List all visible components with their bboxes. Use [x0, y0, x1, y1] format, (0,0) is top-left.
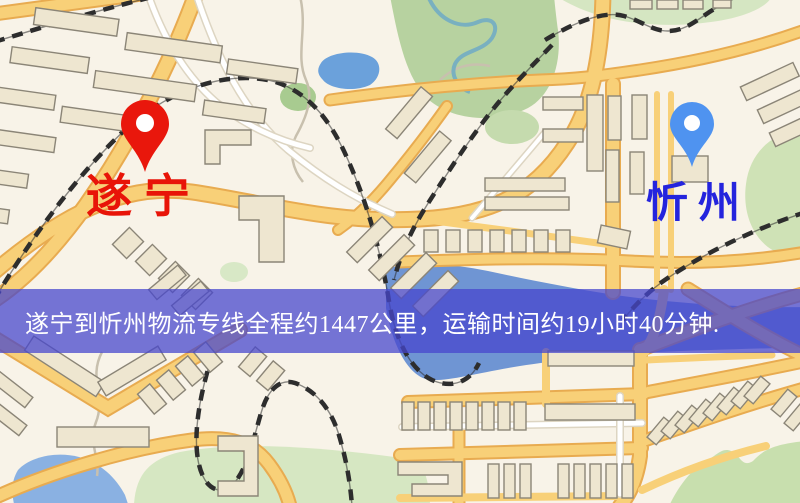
- route-banner-text: 遂宁到忻州物流专线全程约1447公里，运输时间约19小时40分钟.: [25, 304, 720, 339]
- origin-label: 遂宁: [86, 174, 202, 220]
- blue-pin-icon: [665, 97, 719, 169]
- destination-label: 忻州: [646, 183, 750, 225]
- lake: [318, 52, 379, 89]
- map-screenshot: 遂宁 忻州 遂宁到忻州物流专线全程约1447公里，运输时间约19小时40分钟.: [0, 0, 800, 503]
- map-canvas[interactable]: [0, 0, 800, 503]
- red-pin-icon: [115, 94, 175, 174]
- origin-pin[interactable]: [115, 94, 175, 179]
- destination-pin[interactable]: [665, 97, 719, 174]
- route-banner: 遂宁到忻州物流专线全程约1447公里，运输时间约19小时40分钟.: [0, 289, 800, 353]
